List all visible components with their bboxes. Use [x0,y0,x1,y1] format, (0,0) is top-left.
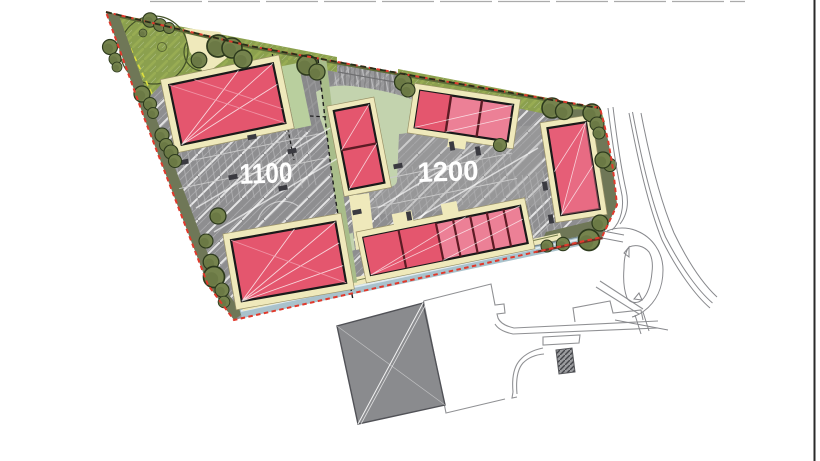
svg-text:1200: 1200 [417,155,479,188]
svg-text:1100: 1100 [239,157,293,191]
